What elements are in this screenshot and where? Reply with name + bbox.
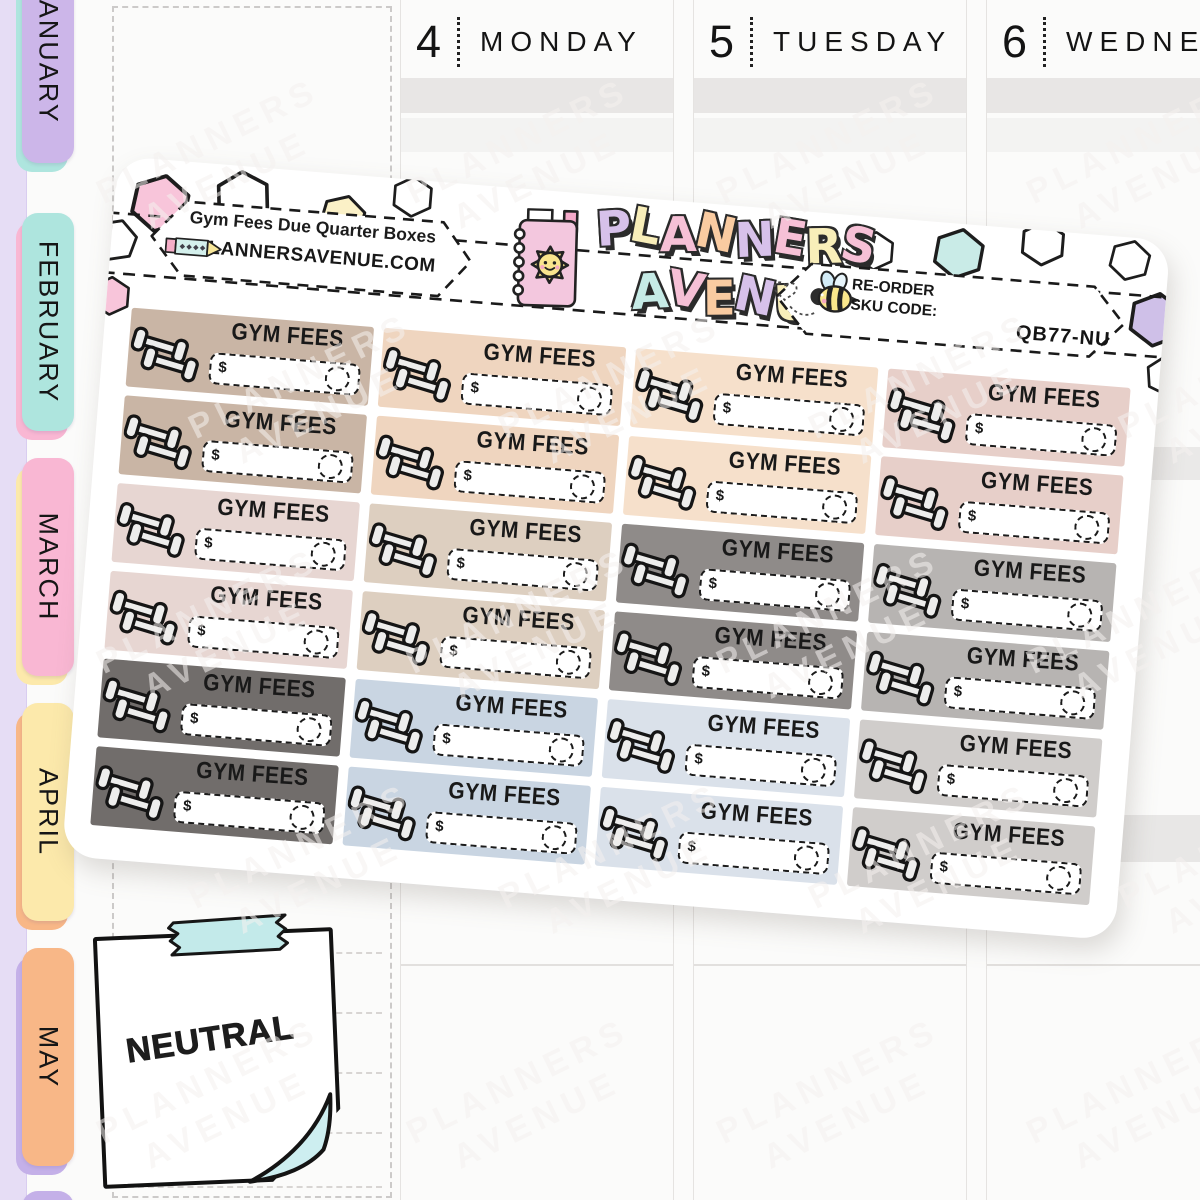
sticker-sheet: Gym Fees Due Quarter Boxes PLANN xyxy=(62,156,1171,940)
day-number: 5 xyxy=(709,16,734,68)
dumbbells-icon xyxy=(871,553,954,621)
product-image: JANUARYFEBRUARYMARCHAPRILMAY 4MONDAY5TUE… xyxy=(0,0,1200,1200)
gym-fees-sticker-box: GYM FEES $ xyxy=(104,571,353,669)
dashed-circle-icon xyxy=(1052,777,1079,804)
dumbbells-icon xyxy=(849,816,932,884)
dumbbells-icon xyxy=(121,404,204,472)
currency-symbol: $ xyxy=(967,507,977,525)
dumbbells-icon xyxy=(100,668,183,736)
currency-symbol: $ xyxy=(974,420,984,438)
dashed-circle-icon xyxy=(1073,514,1100,541)
sticker-label: GYM FEES xyxy=(200,405,361,443)
sticker-label: GYM FEES xyxy=(698,533,859,571)
gym-fees-sticker-box: GYM FEES $ xyxy=(111,483,360,581)
day-name: WEDNESDAY xyxy=(1066,26,1200,58)
month-tab-january: JANUARY xyxy=(22,0,74,163)
sticker-label: GYM FEES xyxy=(179,668,340,706)
dumbbells-icon xyxy=(128,317,211,385)
amount-box: $ xyxy=(965,413,1118,457)
dumbbells-icon xyxy=(633,357,716,425)
dumbbells-icon xyxy=(107,580,190,648)
sticker-label: GYM FEES xyxy=(186,580,347,618)
sticker-label: GYM FEES xyxy=(957,466,1118,504)
dumbbells-icon xyxy=(366,512,449,580)
amount-box: $ xyxy=(194,527,347,571)
gym-fees-sticker-box: GYM FEES $ xyxy=(868,544,1117,642)
dashed-circle-icon xyxy=(1045,865,1072,892)
dashed-circle-icon xyxy=(303,628,330,655)
sticker-label: GYM FEES xyxy=(676,796,837,834)
dumbbells-icon xyxy=(93,755,176,823)
sticker-label: GYM FEES xyxy=(445,513,606,551)
day-label: 5TUESDAY xyxy=(709,14,952,70)
dumbbells-icon xyxy=(618,533,701,601)
day-section-divider xyxy=(694,964,966,966)
month-tab-label: JANUARY xyxy=(33,0,64,124)
sticker-label: GYM FEES xyxy=(936,729,1097,767)
amount-box: $ xyxy=(936,764,1089,808)
sticker-label: GYM FEES xyxy=(172,756,333,794)
dashed-circle-icon xyxy=(562,561,589,588)
currency-symbol: $ xyxy=(218,359,228,377)
dumbbells-icon xyxy=(857,728,940,796)
gym-fees-sticker-box: GYM FEES $ xyxy=(616,524,865,622)
currency-symbol: $ xyxy=(708,575,718,593)
dumbbells-icon xyxy=(864,641,947,709)
currency-symbol: $ xyxy=(456,554,466,572)
dashed-circle-icon xyxy=(541,824,568,851)
currency-symbol: $ xyxy=(953,683,963,701)
currency-symbol: $ xyxy=(435,818,445,836)
sticker-label: GYM FEES xyxy=(943,641,1104,679)
day-allday-band xyxy=(694,118,966,152)
amount-box: $ xyxy=(453,460,606,504)
currency-symbol: $ xyxy=(449,642,459,660)
dashed-circle-icon xyxy=(310,541,337,568)
sticker-label: GYM FEES xyxy=(424,776,585,814)
dashed-circle-icon xyxy=(548,737,575,764)
dashed-circle-icon xyxy=(555,649,582,676)
currency-symbol: $ xyxy=(687,838,697,856)
gym-fees-sticker-box: GYM FEES $ xyxy=(623,436,872,534)
gym-fees-sticker-box: GYM FEES $ xyxy=(861,632,1110,730)
day-section-divider xyxy=(987,964,1200,966)
sticker-label: GYM FEES xyxy=(691,621,852,659)
gym-fees-sticker-box: GYM FEES $ xyxy=(118,395,367,493)
dumbbells-icon xyxy=(359,600,442,668)
currency-symbol: $ xyxy=(189,710,199,728)
currency-symbol: $ xyxy=(960,595,970,613)
sticker-grid: GYM FEES $ GYM FEES $ xyxy=(90,308,1130,906)
amount-box: $ xyxy=(705,480,858,524)
dashed-circle-icon xyxy=(289,804,316,831)
day-number: 6 xyxy=(1002,16,1027,68)
currency-symbol: $ xyxy=(211,446,221,464)
amount-box: $ xyxy=(201,440,354,484)
dashed-circle-icon xyxy=(1066,602,1093,629)
dumbbells-icon xyxy=(597,796,680,864)
day-section-divider xyxy=(401,964,673,966)
gym-fees-sticker-box: GYM FEES $ xyxy=(854,719,1103,817)
dashed-circle-icon xyxy=(814,581,841,608)
dumbbells-icon xyxy=(345,776,428,844)
gym-fees-sticker-box: GYM FEES $ xyxy=(350,679,599,777)
dashed-circle-icon xyxy=(569,473,596,500)
sticker-label: GYM FEES xyxy=(929,817,1090,855)
dumbbells-icon xyxy=(611,620,694,688)
month-tab-march: MARCH xyxy=(22,458,74,676)
day-number: 4 xyxy=(416,16,441,68)
currency-symbol: $ xyxy=(701,662,711,680)
currency-symbol: $ xyxy=(470,379,480,397)
dumbbells-icon xyxy=(878,465,961,533)
month-tab-label: MAY xyxy=(33,1026,64,1089)
amount-box: $ xyxy=(439,635,592,679)
day-label: 6WEDNESDAY xyxy=(1002,14,1200,70)
amount-box: $ xyxy=(698,568,851,612)
month-tab-february: FEBRUARY xyxy=(22,213,74,431)
currency-symbol: $ xyxy=(204,534,214,552)
day-header-band xyxy=(694,78,966,113)
gym-fees-sticker-box: GYM FEES $ xyxy=(602,699,851,797)
currency-symbol: $ xyxy=(715,487,725,505)
gym-fees-sticker-box: GYM FEES $ xyxy=(875,456,1124,554)
month-tab-label: APRIL xyxy=(33,768,64,856)
day-separator xyxy=(750,17,753,67)
month-tab-label: FEBRUARY xyxy=(33,241,64,404)
dashed-circle-icon xyxy=(807,669,834,696)
dashed-circle-icon xyxy=(821,494,848,521)
amount-box: $ xyxy=(712,393,865,437)
page-curl-icon xyxy=(242,1090,338,1186)
day-name: MONDAY xyxy=(480,26,643,58)
dashed-circle-icon xyxy=(296,716,323,743)
gym-fees-sticker-box: GYM FEES $ xyxy=(357,591,606,689)
day-allday-band xyxy=(401,118,673,152)
pencil-icon xyxy=(164,234,224,261)
currency-symbol: $ xyxy=(197,622,207,640)
month-tab-label: MARCH xyxy=(33,513,64,622)
dumbbells-icon xyxy=(352,688,435,756)
amount-box: $ xyxy=(180,703,333,747)
currency-symbol: $ xyxy=(442,730,452,748)
sticker-label: GYM FEES xyxy=(950,554,1111,592)
dashed-circle-icon xyxy=(576,386,603,413)
amount-box: $ xyxy=(929,852,1082,896)
note-label: NEUTRAL xyxy=(100,1005,321,1075)
currency-symbol: $ xyxy=(722,399,732,417)
currency-symbol: $ xyxy=(182,797,192,815)
day-name: TUESDAY xyxy=(773,26,952,58)
dumbbells-icon xyxy=(373,425,456,493)
dashed-circle-icon xyxy=(828,406,855,433)
amount-box: $ xyxy=(173,791,326,835)
amount-box: $ xyxy=(943,676,1096,720)
day-label: 4MONDAY xyxy=(416,14,643,70)
amount-box: $ xyxy=(460,372,613,416)
dashed-circle-icon xyxy=(1080,426,1107,453)
currency-symbol: $ xyxy=(463,467,473,485)
day-separator xyxy=(1043,17,1046,67)
amount-box: $ xyxy=(691,656,844,700)
sticker-label: GYM FEES xyxy=(431,688,592,726)
gym-fees-sticker-box: GYM FEES $ xyxy=(364,503,613,601)
amount-box: $ xyxy=(208,352,361,396)
dumbbells-icon xyxy=(604,708,687,776)
bee-icon xyxy=(761,264,861,328)
day-header-band xyxy=(987,78,1200,113)
sticker-label: GYM FEES xyxy=(683,709,844,747)
currency-symbol: $ xyxy=(939,858,949,876)
amount-box: $ xyxy=(446,548,599,592)
notebook-icon xyxy=(506,208,587,314)
dashed-circle-icon xyxy=(1059,689,1086,716)
amount-box: $ xyxy=(684,744,837,788)
amount-box: $ xyxy=(425,811,578,855)
sticker-label: GYM FEES xyxy=(452,425,613,463)
amount-box: $ xyxy=(187,615,340,659)
amount-box: $ xyxy=(677,831,830,875)
currency-symbol: $ xyxy=(946,770,956,788)
dashed-circle-icon xyxy=(800,757,827,784)
amount-box: $ xyxy=(950,588,1103,632)
dumbbells-icon xyxy=(885,378,968,446)
dumbbells-icon xyxy=(625,445,708,513)
dashed-circle-icon xyxy=(793,845,820,872)
washi-tape-icon xyxy=(161,912,295,959)
sticker-label: GYM FEES xyxy=(438,601,599,639)
month-tab-next xyxy=(22,1191,74,1200)
dumbbells-icon xyxy=(114,492,197,560)
day-separator xyxy=(457,17,460,67)
dashed-circle-icon xyxy=(324,365,351,392)
dumbbells-icon xyxy=(380,337,463,405)
currency-symbol: $ xyxy=(694,750,704,768)
amount-box: $ xyxy=(432,723,585,767)
gym-fees-sticker-box: GYM FEES $ xyxy=(609,611,858,709)
amount-box: $ xyxy=(958,501,1111,545)
sticker-label: GYM FEES xyxy=(705,446,866,484)
day-allday-band xyxy=(987,118,1200,152)
gym-fees-sticker-box: GYM FEES $ xyxy=(97,658,346,756)
dashed-circle-icon xyxy=(317,453,344,480)
gym-fees-sticker-box: GYM FEES $ xyxy=(371,416,620,514)
month-tab-may: MAY xyxy=(22,948,74,1166)
day-header-band xyxy=(401,78,673,113)
sticker-label: GYM FEES xyxy=(193,493,354,531)
